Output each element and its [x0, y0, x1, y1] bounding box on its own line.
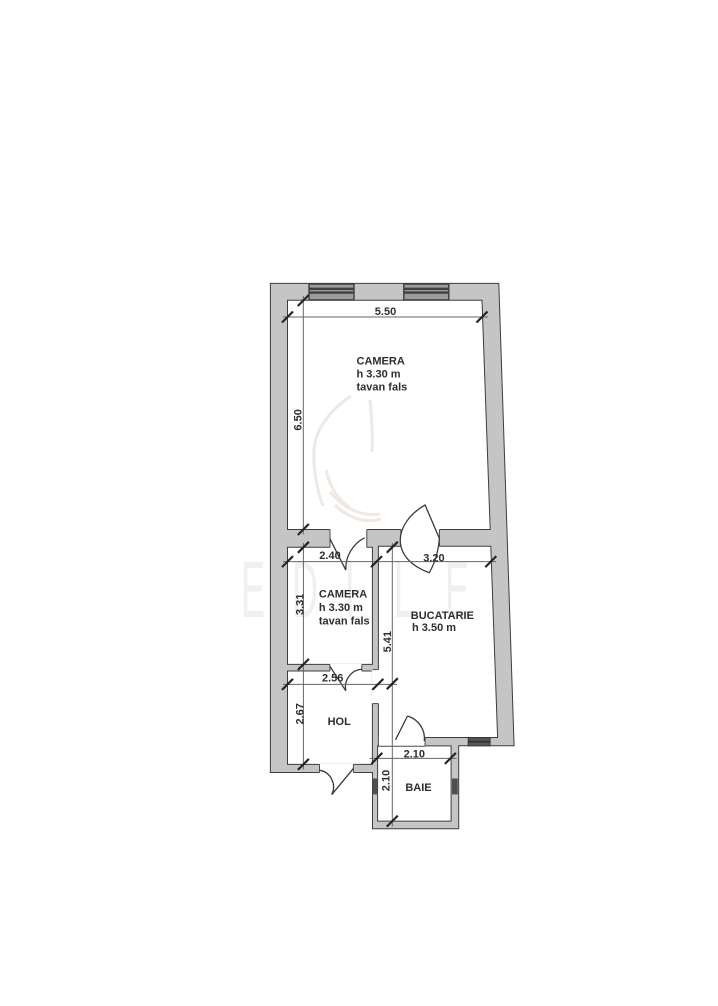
- svg-text:CAMERA: CAMERA: [319, 588, 367, 600]
- svg-text:D: D: [292, 546, 318, 635]
- svg-text:6.50: 6.50: [293, 409, 305, 430]
- svg-text:5.41: 5.41: [382, 631, 394, 652]
- svg-text:3.20: 3.20: [423, 552, 444, 564]
- svg-text:h 3.30 m: h 3.30 m: [357, 369, 401, 381]
- svg-text:E: E: [241, 546, 265, 635]
- svg-text:2.67: 2.67: [294, 703, 306, 724]
- svg-text:2.10: 2.10: [404, 748, 425, 760]
- svg-text:2.56: 2.56: [322, 672, 343, 684]
- svg-text:2.40: 2.40: [319, 550, 340, 562]
- svg-text:CAMERA: CAMERA: [357, 356, 405, 368]
- svg-text:I: I: [345, 546, 355, 635]
- svg-text:L: L: [394, 546, 414, 635]
- svg-text:BAIE: BAIE: [405, 782, 431, 794]
- svg-text:5.50: 5.50: [375, 306, 396, 318]
- svg-text:h 3.30 m: h 3.30 m: [319, 602, 363, 614]
- svg-text:tavan fals: tavan fals: [357, 382, 408, 394]
- svg-text:2.10: 2.10: [380, 770, 392, 791]
- svg-text:HOL: HOL: [328, 716, 352, 728]
- svg-text:E: E: [445, 546, 469, 635]
- svg-text:tavan fals: tavan fals: [319, 615, 370, 627]
